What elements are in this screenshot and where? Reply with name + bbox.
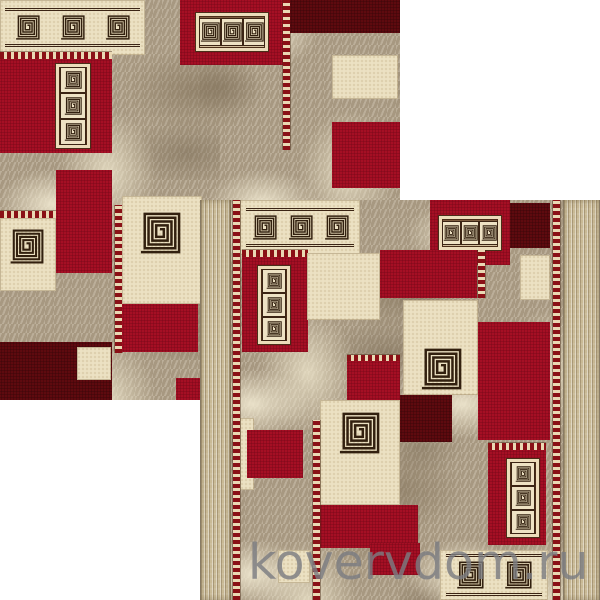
meander-tile: [60, 119, 86, 145]
meander-tile: [60, 93, 86, 119]
greek-key-spiral-icon: [324, 215, 349, 240]
rug-block-red: [332, 122, 400, 188]
rug-block-ornv: [115, 205, 122, 353]
greek-key-spiral-icon: [266, 321, 282, 337]
greek-key-spiral-icon: [462, 225, 478, 241]
rug-block-maroon: [290, 0, 400, 33]
meander-tile: [262, 269, 286, 293]
greek-key-spiral-icon: [338, 412, 380, 454]
greek-key-spiral-icon: [64, 123, 82, 141]
meander-tile: [511, 486, 535, 510]
rug-binding-band-left: [200, 200, 231, 600]
greek-key-spiral-icon: [266, 297, 282, 313]
meander-tile: [199, 18, 221, 46]
rug-block-ornv: [283, 0, 290, 150]
rug-block-ornh: [242, 250, 308, 257]
meander-tile: [221, 18, 243, 46]
rug-block-red: [242, 257, 308, 352]
rug-block-maroon: [510, 203, 550, 248]
rug-block-ornv: [478, 250, 485, 298]
meander-tile: [60, 67, 86, 93]
greek-key-spiral-icon: [64, 71, 82, 89]
meander-motif: [196, 13, 268, 51]
greek-key-spiral-icon: [515, 514, 531, 530]
meander-tile: [262, 293, 286, 317]
meander-motif: [56, 64, 90, 148]
rug-block-red: [122, 304, 198, 352]
meander-motif: [5, 8, 140, 47]
watermark-text: kovervdom.ru: [248, 534, 589, 591]
rug-block-cream: [0, 218, 56, 291]
rug-block-ornh: [0, 211, 56, 218]
greek-key-spiral-icon: [515, 466, 531, 482]
greek-key-spiral-icon: [200, 22, 220, 42]
rug-block-maroon: [400, 395, 452, 442]
greek-key-spiral-icon: [443, 225, 459, 241]
rug-block-red: [380, 250, 477, 298]
greek-key-spiral-icon: [420, 348, 462, 390]
meander-tile: [243, 18, 265, 46]
rug-block-red: [0, 59, 112, 153]
rug-block-cream: [0, 0, 145, 55]
rug-block-cream: [122, 196, 202, 304]
greek-key-spiral-icon: [244, 22, 264, 42]
rug-block-cream: [307, 253, 380, 320]
greek-key-spiral-icon: [139, 212, 181, 254]
rug-block-red: [478, 322, 550, 440]
greek-key-spiral-icon: [105, 15, 130, 40]
greek-key-spiral-icon: [252, 215, 277, 240]
meander-motif: [246, 208, 354, 247]
rug-block-cream: [320, 400, 400, 505]
greek-key-spiral-icon: [60, 15, 85, 40]
rug-block-red: [488, 450, 546, 545]
meander-tile: [511, 510, 535, 534]
greek-key-spiral-icon: [515, 490, 531, 506]
rug-border-ornament-left: [233, 200, 240, 600]
meander-tile: [461, 221, 480, 245]
greek-key-spiral-icon: [15, 15, 40, 40]
greek-key-spiral-icon: [266, 273, 282, 289]
rug-block-cream: [240, 200, 360, 255]
greek-key-spiral-icon: [9, 229, 44, 264]
meander-tile: [479, 221, 498, 245]
rug-block-ornh: [488, 443, 546, 450]
greek-key-spiral-icon: [222, 22, 242, 42]
meander-tile: [511, 462, 535, 486]
rug-block-cream: [332, 55, 398, 99]
greek-key-spiral-icon: [64, 97, 82, 115]
meander-motif: [258, 266, 290, 344]
rug-block-cream: [403, 300, 478, 395]
meander-motif: [507, 459, 539, 537]
greek-key-spiral-icon: [481, 225, 497, 241]
greek-key-spiral-icon: [288, 215, 313, 240]
rug-block-ornh: [0, 52, 112, 59]
meander-tile: [262, 317, 286, 341]
rug-block-red: [247, 430, 303, 478]
rug-block-red: [347, 361, 400, 400]
rug-block-cream: [77, 347, 111, 380]
meander-motif: [439, 216, 501, 250]
product-photo: kovervdom.ru: [0, 0, 600, 600]
rug-block-red: [180, 0, 283, 65]
rug-block-cream: [520, 255, 550, 300]
meander-tile: [442, 221, 461, 245]
rug-block-red: [176, 378, 203, 400]
rug-block-red: [56, 170, 112, 273]
